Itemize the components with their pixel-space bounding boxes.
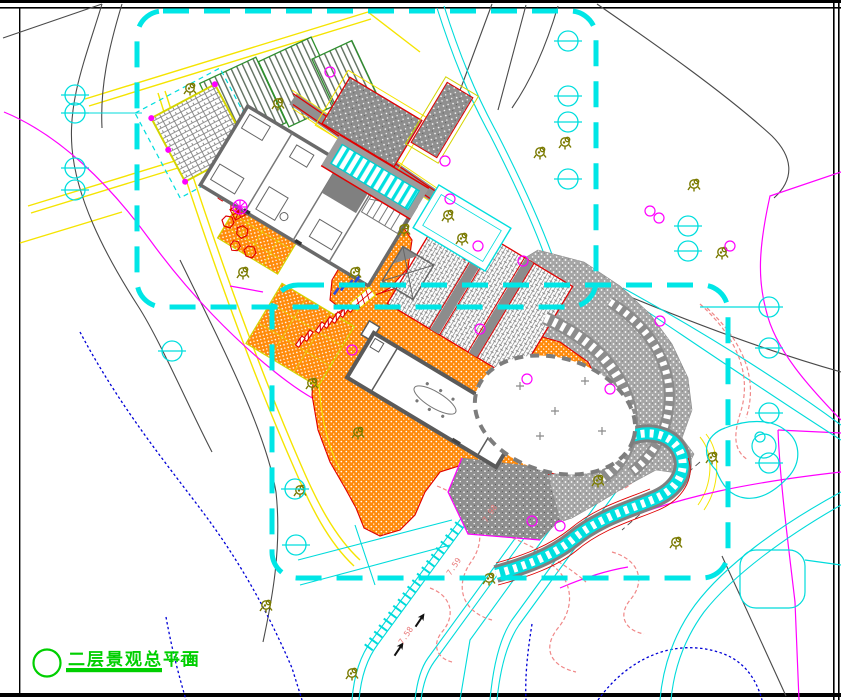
fountain-symbol xyxy=(233,200,247,214)
elevation-label-2: 7.59 xyxy=(445,556,463,577)
title-block: 二层景观总平面 1:200 xyxy=(34,649,202,677)
drawing-scale: 1:200 xyxy=(168,654,198,665)
title-underline xyxy=(66,668,162,672)
title-bullet-circle xyxy=(34,650,61,677)
cad-drawing-stage: 7.98 7.59 7.58 二层景观总平面 1:200 xyxy=(0,0,841,700)
elevation-label-3: 7.58 xyxy=(397,625,415,646)
site-plan-canvas[interactable]: 7.98 7.59 7.58 二层景观总平面 1:200 xyxy=(0,0,841,700)
